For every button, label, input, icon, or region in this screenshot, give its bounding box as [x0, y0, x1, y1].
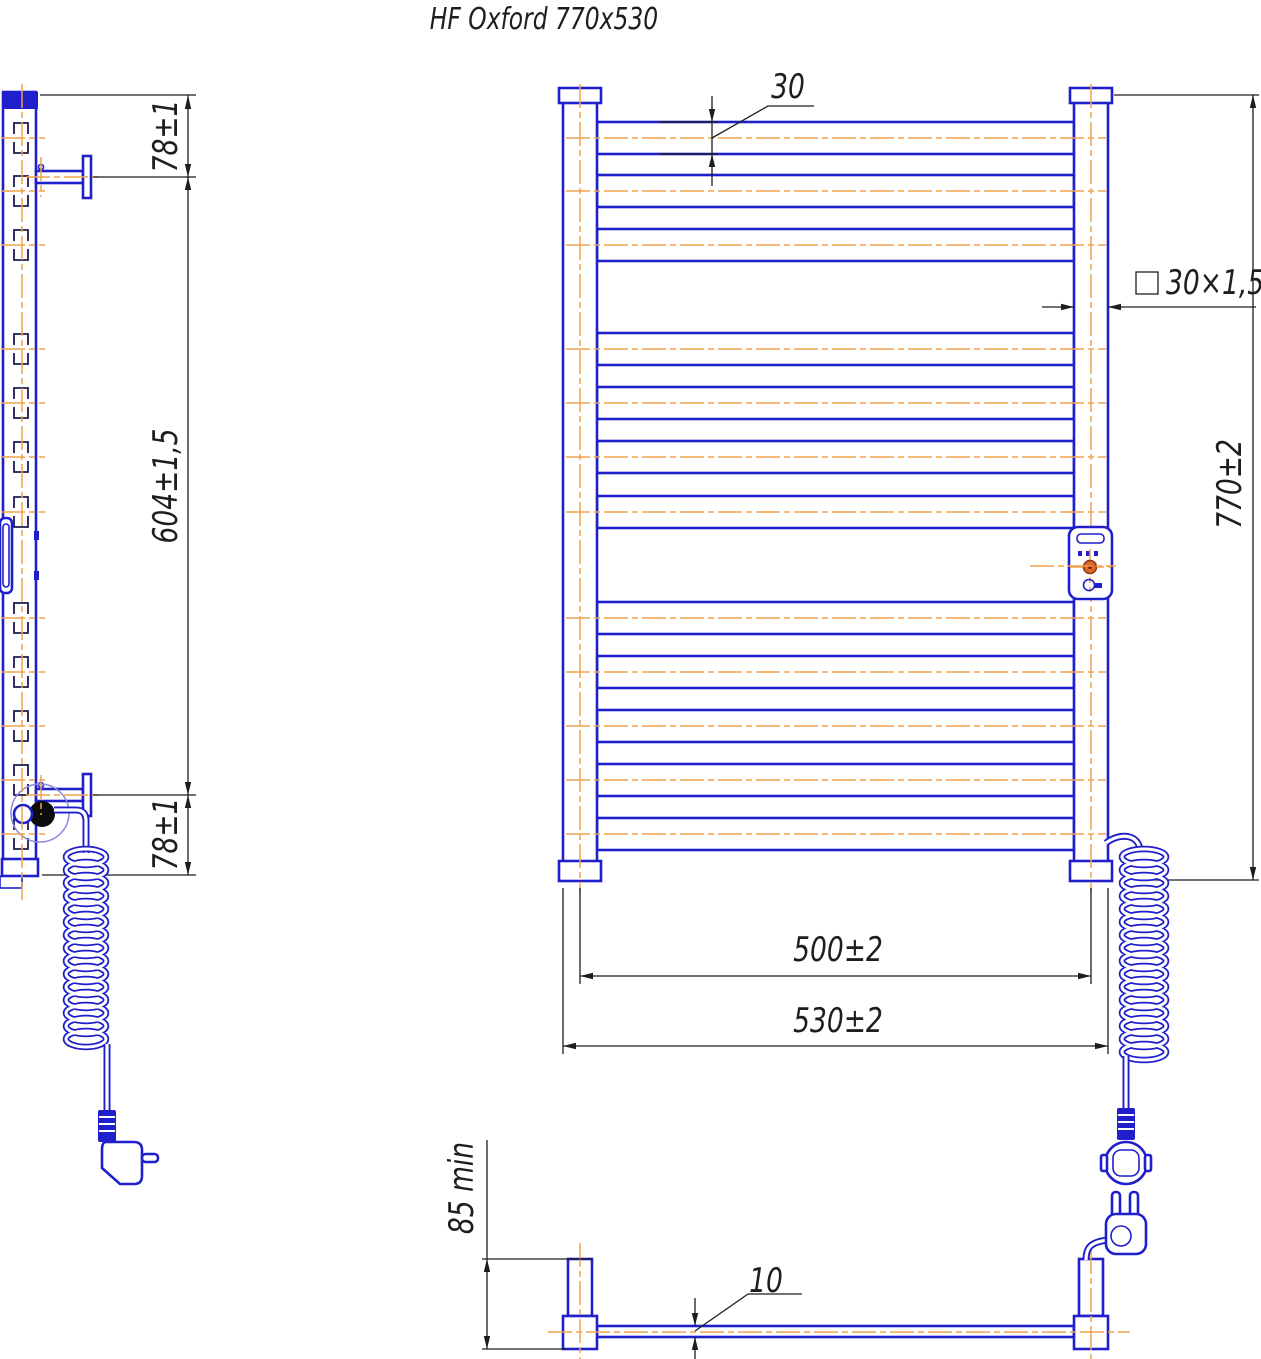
side-post-foot	[0, 876, 22, 888]
dim-label-side-mid: 604±1,5	[149, 428, 183, 543]
dim-label-axis-width: 500±2	[793, 933, 883, 967]
dim-label-side-top: 78±1	[149, 100, 183, 173]
plug-right-face	[1101, 1108, 1151, 1184]
dim-label-wall-clearance: 85 min	[445, 1142, 479, 1234]
side-post-top-cap	[2, 92, 38, 109]
technical-drawing	[0, 0, 1261, 1359]
plug-bottom-top-view	[1086, 1192, 1146, 1260]
dim-label-rail-depth: 10	[749, 1264, 783, 1298]
dim-label-side-bottom: 78±1	[149, 798, 183, 871]
drawing-canvas: HF Oxford 770x530 78±1 604±1,5 78±1 30 3…	[0, 0, 1261, 1359]
dim-label-overall-width: 530±2	[793, 1004, 883, 1038]
side-post	[3, 92, 36, 868]
dim-label-tube-spec: 30×1,5	[1166, 266, 1261, 300]
control-unit	[1069, 527, 1112, 599]
dim-label-overall-height: 770±2	[1213, 439, 1247, 529]
plug-pin	[142, 1154, 158, 1162]
power-cords	[54, 810, 1166, 1260]
drawing-title: HF Oxford 770x530	[430, 5, 658, 35]
dim-label-rail-height: 30	[771, 70, 805, 104]
front-view	[559, 84, 1116, 893]
bottom-view	[548, 1243, 1130, 1359]
side-post-bottom-cap	[2, 859, 38, 876]
plug-left	[98, 1110, 158, 1184]
side-view	[0, 84, 100, 900]
square-section-symbol	[1136, 272, 1158, 294]
